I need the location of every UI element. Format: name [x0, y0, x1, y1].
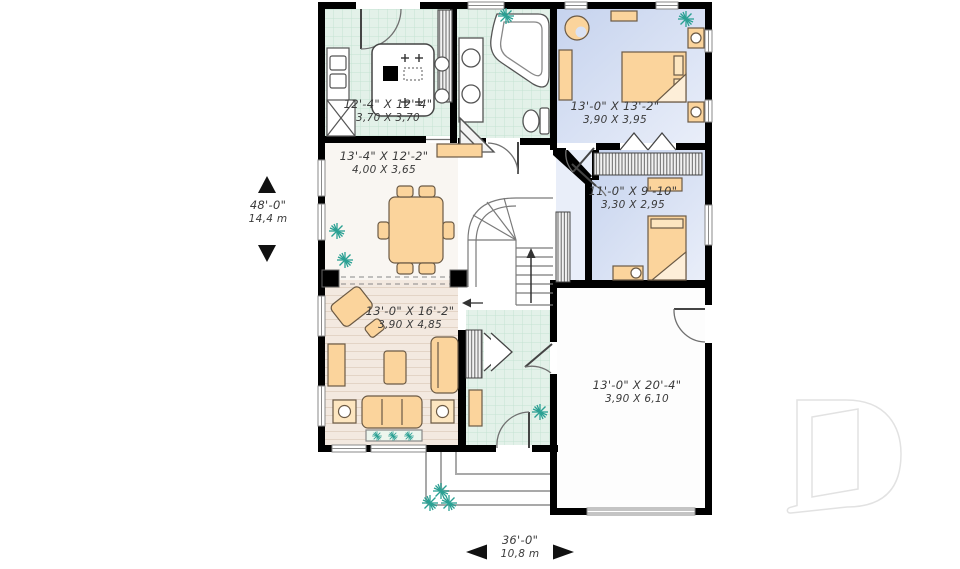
dining-chair-5 — [378, 222, 389, 239]
entry-bench — [469, 390, 482, 426]
dining-chair — [397, 186, 413, 197]
sofa — [362, 396, 422, 428]
drummond-d-logo-watermark — [787, 400, 901, 513]
entry-furniture — [469, 390, 482, 426]
bedroom2-pillow — [651, 219, 683, 228]
kitchen-dining-opening — [426, 136, 450, 143]
depth-arrow-up — [258, 176, 276, 193]
kitchen-sink-2 — [330, 74, 346, 88]
bathroom-sink — [462, 49, 480, 67]
table-lamp — [339, 406, 351, 418]
porch-steps — [426, 452, 551, 505]
depth-arrow-down — [258, 245, 276, 262]
divider-post-left — [322, 270, 339, 287]
hall-console — [437, 144, 482, 157]
bedroom2-lamp — [631, 268, 641, 278]
toilet — [523, 108, 549, 134]
garage-floor — [557, 288, 705, 508]
bedroom2-dresser — [648, 178, 682, 191]
loveseat — [431, 337, 458, 393]
pillow — [674, 56, 683, 75]
kitchen-island — [372, 44, 434, 116]
lamp-2 — [691, 107, 701, 117]
kitchen-stool — [435, 57, 449, 71]
width-arrow-right — [553, 545, 574, 560]
bathroom-sink-2 — [462, 85, 480, 103]
bedroom2-linen-hatch — [556, 212, 570, 282]
bedroom2-window — [705, 205, 712, 245]
master-chair — [565, 16, 589, 40]
master-dresser — [559, 50, 572, 100]
hall-floor — [458, 143, 550, 310]
kitchen-stool-2 — [435, 89, 449, 103]
master-rug — [611, 11, 637, 21]
bathroom-window — [468, 2, 504, 9]
dining-chair-3 — [397, 263, 413, 274]
table-lamp-2 — [437, 406, 449, 418]
master-closet-hatch — [594, 153, 702, 175]
kitchen-sink — [330, 56, 346, 70]
tv-cabinet — [328, 344, 345, 386]
width-arrow-left — [466, 545, 487, 560]
lamp — [691, 33, 701, 43]
dining-chair-4 — [419, 263, 435, 274]
plant-icon — [422, 495, 438, 511]
cooktop — [383, 66, 398, 81]
floor-plan-page: 12'-4" X 12'-4" 3,70 X 3,70 13'-4" X 12'… — [0, 0, 960, 569]
dining-table — [389, 197, 443, 263]
garage-door-opening — [587, 508, 695, 515]
floor-plan-drawing — [0, 0, 960, 569]
divider-post-right — [450, 270, 467, 287]
kitchen-counter-right — [438, 10, 452, 102]
dining-chair-2 — [419, 186, 435, 197]
entry-closet-hatch — [466, 330, 482, 378]
dining-chair-6 — [443, 222, 454, 239]
coffee-table — [384, 351, 406, 384]
